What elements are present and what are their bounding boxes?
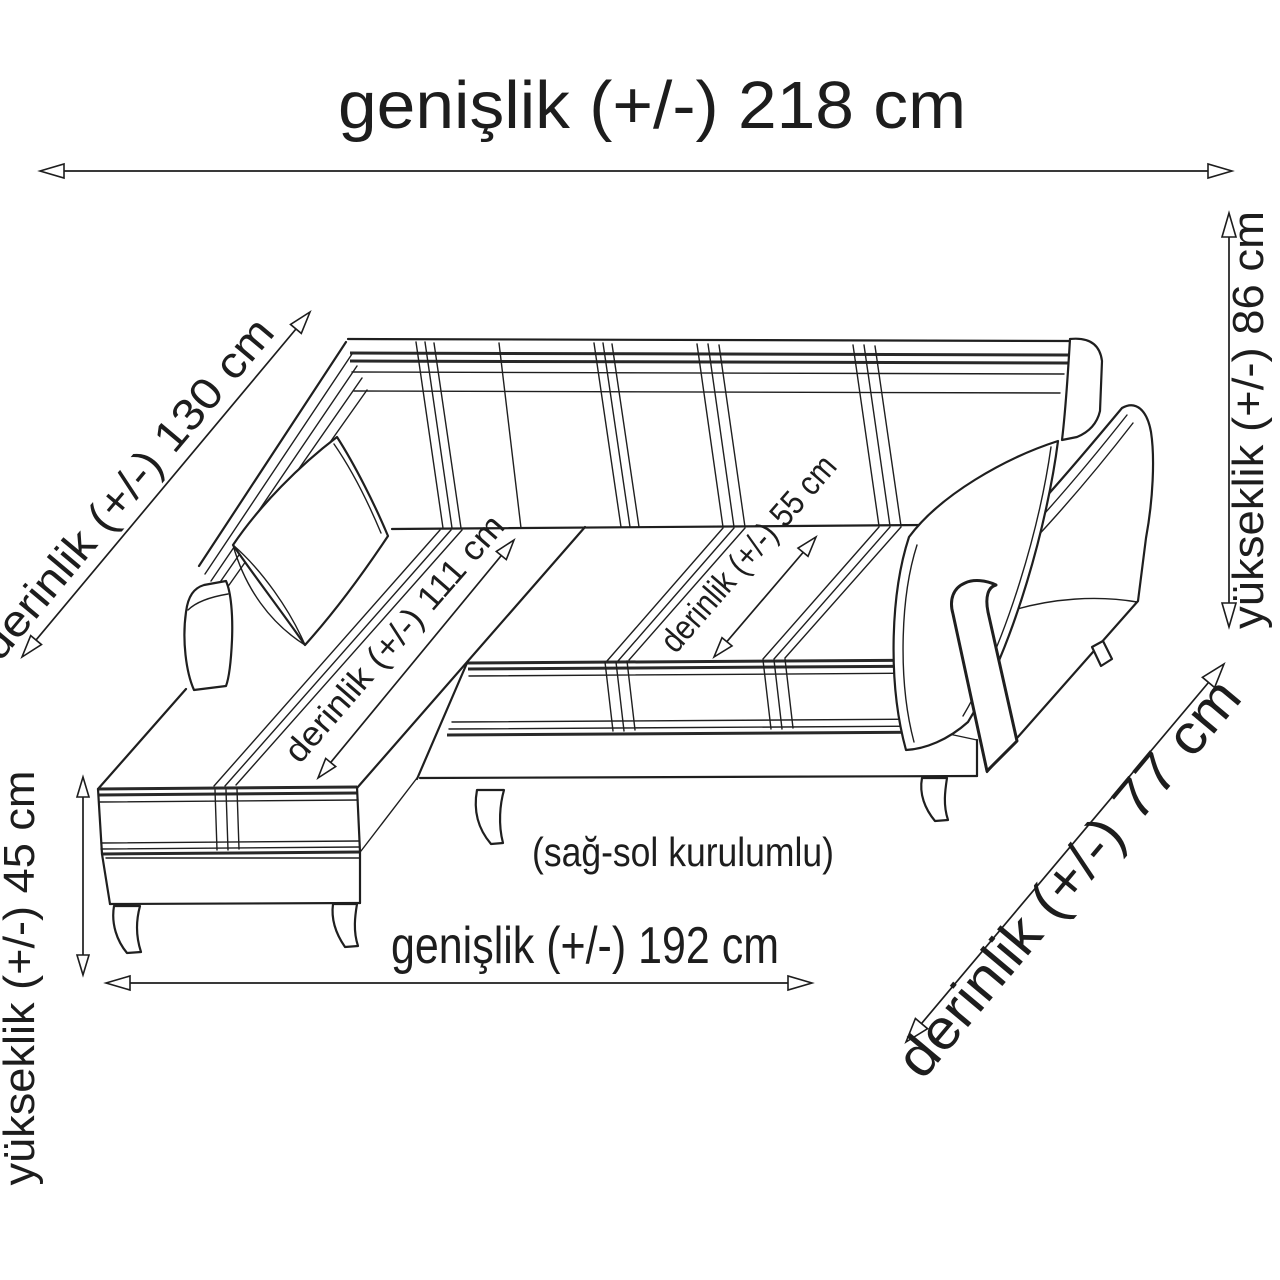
- dim-left-height: [77, 777, 89, 975]
- seat-right-leg: [921, 778, 948, 821]
- label-left-depth: derinlik (+/-) 130 cm: [0, 308, 284, 669]
- sofa-dimension-drawing: genişlik (+/-) 218 cm derinlik (+/-) 130…: [0, 0, 1280, 1280]
- label-left-height: yükseklik (+/-) 45 cm: [0, 771, 44, 1186]
- left-pillow: [233, 437, 388, 645]
- label-seat-depth: derinlik (+/-) 55 cm: [653, 448, 844, 660]
- backrest-end-cap: [1062, 339, 1102, 440]
- chaise-right-leg: [333, 904, 358, 947]
- left-armrest: [184, 581, 232, 690]
- chaise-left-leg: [113, 906, 141, 953]
- dim-left-depth: [22, 312, 310, 657]
- dim-bottom-width: [106, 976, 812, 990]
- label-orientation-note: (sağ-sol kurulumlu): [532, 829, 834, 875]
- armrest-back-leg: [1092, 641, 1112, 666]
- dim-top-width: [40, 164, 1232, 178]
- seat-left-leg: [476, 790, 504, 844]
- dimension-diagram: genişlik (+/-) 218 cm derinlik (+/-) 130…: [0, 0, 1280, 1280]
- label-top-width: genişlik (+/-) 218 cm: [338, 68, 966, 143]
- label-right-height: yükseklik (+/-) 86 cm: [1224, 211, 1273, 629]
- label-bottom-width: genişlik (+/-) 192 cm: [391, 917, 779, 975]
